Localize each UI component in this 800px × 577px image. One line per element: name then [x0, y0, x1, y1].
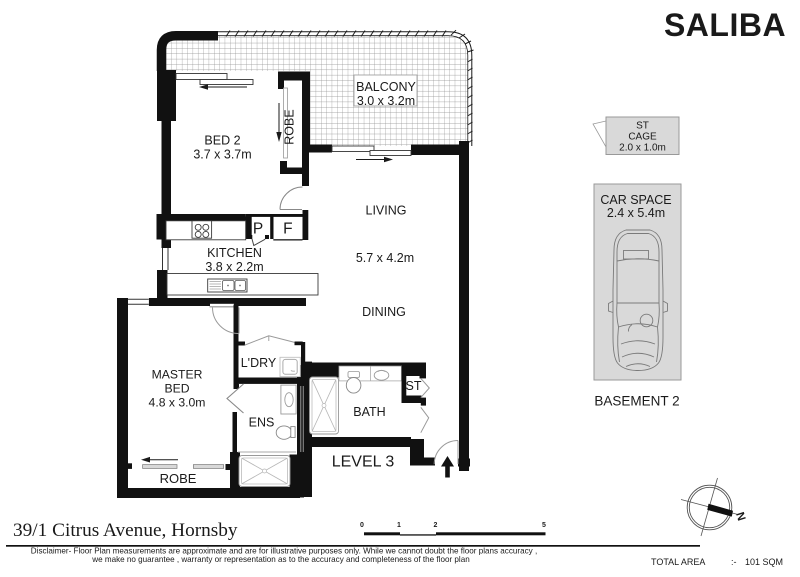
svg-text:SALIBA: SALIBA [664, 7, 786, 43]
svg-text:BED: BED [164, 382, 189, 396]
svg-text:P: P [253, 221, 263, 238]
svg-text::-: :- [731, 557, 737, 567]
svg-text:BATH: BATH [353, 405, 385, 419]
svg-text:TOTAL AREA: TOTAL AREA [651, 557, 705, 567]
svg-text:3.8 x 2.2m: 3.8 x 2.2m [205, 260, 263, 274]
svg-text:2: 2 [434, 522, 438, 529]
svg-text:we make no guarantee , warrant: we make no guarantee , warranty or repre… [91, 555, 469, 564]
svg-text:ST: ST [406, 379, 422, 393]
svg-text:2.0 x 1.0m: 2.0 x 1.0m [619, 143, 666, 154]
svg-text:BED 2: BED 2 [204, 134, 240, 148]
svg-text:KITCHEN: KITCHEN [207, 246, 262, 260]
svg-text:3.7 x 3.7m: 3.7 x 3.7m [193, 148, 251, 162]
svg-text:LIVING: LIVING [366, 204, 407, 218]
svg-text:1: 1 [397, 522, 401, 529]
svg-text:39/1 Citrus Avenue, Hornsby: 39/1 Citrus Avenue, Hornsby [13, 520, 238, 541]
svg-text:DINING: DINING [362, 305, 406, 319]
svg-text:CAGE: CAGE [628, 132, 657, 143]
svg-text:ST: ST [636, 121, 649, 132]
svg-text:3.0 x 3.2m: 3.0 x 3.2m [357, 94, 415, 108]
svg-text:2.4 x 5.4m: 2.4 x 5.4m [607, 206, 665, 220]
svg-text:ROBE: ROBE [283, 109, 297, 144]
svg-text:ROBE: ROBE [160, 471, 197, 486]
svg-text:BASEMENT 2: BASEMENT 2 [594, 394, 679, 409]
svg-text:MASTER: MASTER [152, 368, 203, 382]
svg-text:LEVEL 3: LEVEL 3 [332, 454, 395, 471]
svg-text:5: 5 [542, 522, 546, 529]
svg-text:ENS: ENS [249, 416, 275, 430]
svg-text:0: 0 [360, 522, 364, 529]
svg-text:101 SQM: 101 SQM [745, 557, 783, 567]
svg-text:4.8 x 3.0m: 4.8 x 3.0m [149, 396, 206, 410]
svg-text:BALCONY: BALCONY [356, 80, 416, 94]
svg-text:F: F [283, 221, 292, 238]
svg-text:L'DRY: L'DRY [241, 356, 277, 370]
svg-text:5.7 x 4.2m: 5.7 x 4.2m [356, 251, 414, 265]
svg-text:CAR SPACE: CAR SPACE [600, 193, 671, 207]
